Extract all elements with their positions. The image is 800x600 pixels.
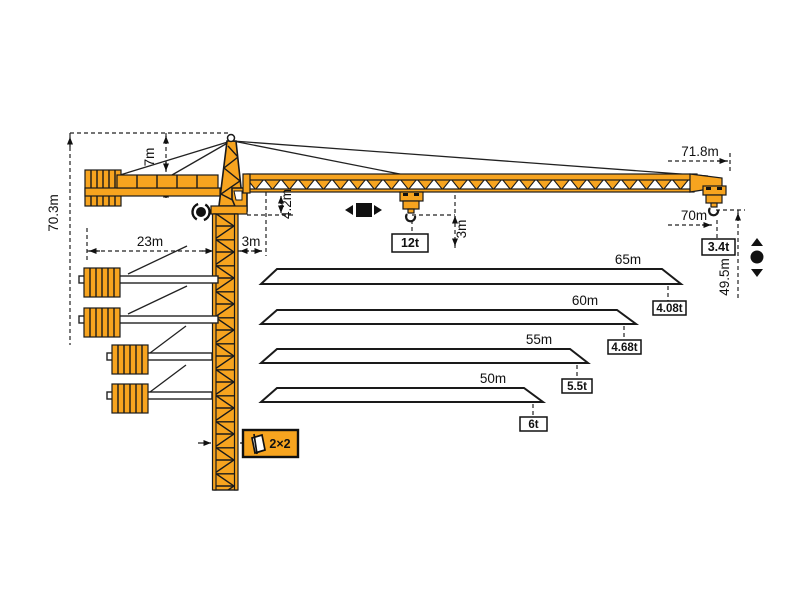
tower-chord-right — [235, 214, 239, 490]
crane-diagram: 65m 4.08t 60m 4.68t 55m 5.5t 50m 6t — [0, 0, 800, 600]
variant-length-label: 55m — [526, 332, 552, 347]
jib-variants: 65m 4.08t 60m 4.68t 55m 5.5t 50m 6t — [261, 252, 686, 431]
jib-top-chord — [247, 174, 697, 180]
diagram-canvas: 65m 4.08t 60m 4.68t 55m 5.5t 50m 6t — [0, 0, 800, 600]
leader-line — [128, 246, 187, 274]
counterweight-row-1 — [79, 246, 218, 297]
variant-jib-outline — [261, 349, 588, 363]
hook-clearance-label: 3m — [454, 220, 469, 239]
max-load-label: 12t — [401, 236, 420, 250]
tip-span-label: 71.8m — [681, 144, 719, 159]
variant-jib-outline — [261, 388, 543, 402]
slewing-dot — [196, 207, 206, 217]
mast-section-label: 2×2 — [269, 437, 290, 451]
hoist-dot — [751, 251, 764, 264]
variant-60m: 60m 4.68t — [261, 293, 641, 354]
slewing-icon — [192, 204, 209, 220]
leader-line — [150, 326, 186, 353]
counterweight-variants — [79, 246, 218, 413]
jib-pendant-inner — [233, 141, 420, 178]
variant-load-label: 4.08t — [656, 303, 682, 315]
counter-jib-platform — [117, 175, 218, 188]
trolley-wheel — [403, 193, 408, 196]
tower-chord-left — [213, 214, 217, 490]
slewing-platform — [211, 206, 247, 214]
leader-line — [150, 365, 186, 392]
travel-arrow-right — [374, 205, 382, 215]
hook-shank — [408, 209, 414, 213]
trolley-wheel — [414, 193, 419, 196]
jib-depth-label: 4.2m — [279, 189, 294, 219]
variant-load-label: 6t — [528, 419, 538, 431]
counter-jib — [85, 141, 231, 206]
jib-bottom-chord — [247, 189, 694, 192]
rear-offset-label: 3m — [242, 234, 261, 249]
variant-length-label: 65m — [615, 252, 641, 267]
counter-jib-beam — [85, 188, 220, 196]
hoist-arrow-up — [751, 238, 763, 246]
tip-load-label: 3.4t — [708, 240, 730, 254]
leader-line — [128, 286, 187, 314]
working-radius-label: 70m — [681, 208, 707, 223]
variant-65m: 65m 4.08t — [261, 252, 686, 315]
hoisting-icon — [751, 238, 764, 277]
variant-jib-outline — [261, 310, 636, 324]
counter-radius-label: 23m — [137, 234, 163, 249]
cab-window — [234, 191, 242, 200]
variant-load-label: 5.5t — [567, 381, 587, 393]
main-jib — [233, 141, 722, 193]
total-height-label: 70.3m — [46, 194, 61, 232]
travel-arrow-left — [345, 205, 353, 215]
hook-block — [706, 195, 722, 203]
trolley-travel-icon — [345, 203, 382, 217]
hook-shank — [711, 203, 717, 207]
hook-icon — [709, 208, 718, 215]
counter-pendant-outer — [120, 141, 231, 175]
trolley-wheel — [706, 187, 711, 190]
variant-jib-outline — [261, 269, 681, 284]
hoist-arrow-down — [751, 269, 763, 277]
jib-pendant-outer — [233, 141, 708, 176]
load-callouts: 12t 3.4t — [392, 234, 735, 255]
hook-travel-label: 49.5m — [717, 258, 732, 296]
trolley-wheel — [717, 187, 722, 190]
counterweight-row-3 — [107, 326, 212, 374]
variant-length-label: 50m — [480, 371, 506, 386]
counter-pendant-inner — [172, 141, 231, 175]
variant-load-label: 4.68t — [611, 342, 637, 354]
variant-length-label: 60m — [572, 293, 598, 308]
head-height-label: 7m — [142, 148, 157, 167]
jib-root-post — [243, 174, 250, 193]
jib-lattice — [247, 179, 694, 190]
variant-55m: 55m 5.5t — [261, 332, 592, 393]
tower-mast-lattice — [214, 214, 237, 490]
hook-block — [403, 201, 419, 209]
variant-50m: 50m 6t — [261, 371, 547, 431]
travel-square — [356, 203, 372, 217]
trolley-mid — [400, 192, 423, 221]
